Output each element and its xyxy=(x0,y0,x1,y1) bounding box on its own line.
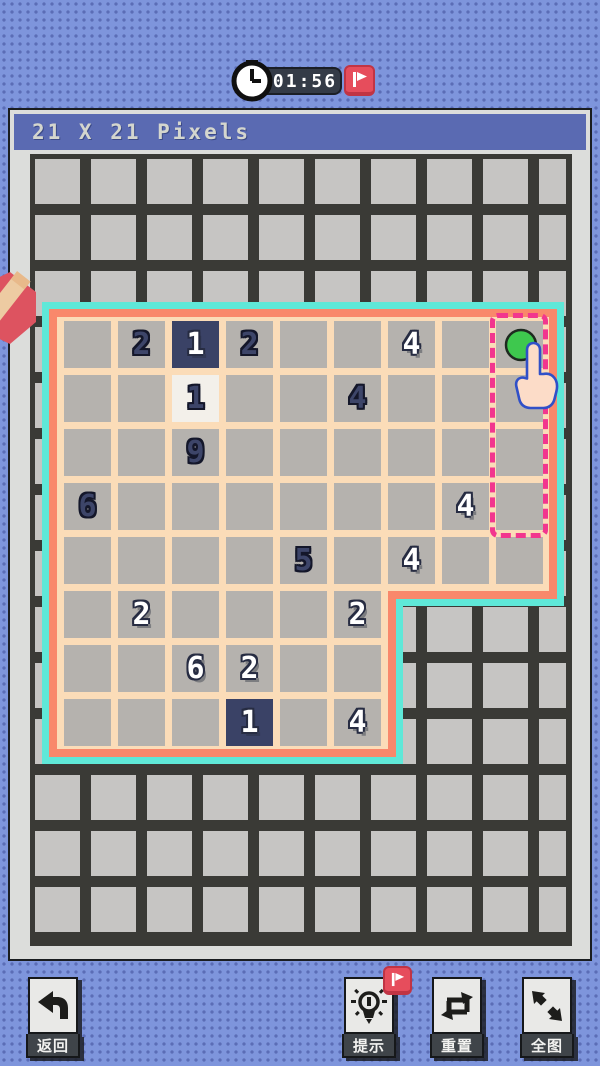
puzzle-cell[interactable] xyxy=(118,375,165,422)
puzzle-cell[interactable]: 5 xyxy=(280,537,327,584)
puzzle-cell[interactable] xyxy=(172,699,219,746)
puzzle-cell[interactable] xyxy=(280,429,327,476)
puzzle-cell[interactable]: 2 xyxy=(226,645,273,692)
puzzle-cell[interactable] xyxy=(64,591,111,638)
puzzle-cell[interactable] xyxy=(64,375,111,422)
puzzle-cell[interactable] xyxy=(334,645,381,692)
timer-value: 01:56 xyxy=(273,71,337,92)
puzzle-number: 6 xyxy=(186,654,204,684)
puzzle-number: 2 xyxy=(132,600,150,630)
puzzle-cell[interactable]: 6 xyxy=(172,645,219,692)
puzzle-cell[interactable] xyxy=(388,429,435,476)
puzzle-number: 1 xyxy=(186,384,204,414)
puzzle-cell[interactable] xyxy=(64,537,111,584)
full-view-button-label: 全图 xyxy=(520,1034,574,1058)
puzzle-number: 2 xyxy=(348,600,366,630)
hint-button[interactable]: 提示 xyxy=(342,977,396,1058)
puzzle-cell[interactable]: 6 xyxy=(64,483,111,530)
puzzle-cell[interactable]: 1 xyxy=(172,321,219,368)
puzzle-cell[interactable] xyxy=(388,375,435,422)
puzzle-number: 1 xyxy=(186,330,204,360)
puzzle-cell[interactable]: 9 xyxy=(172,429,219,476)
puzzle-number: 9 xyxy=(186,438,204,468)
puzzle-number: 5 xyxy=(294,546,312,576)
puzzle-cell[interactable]: 2 xyxy=(118,321,165,368)
reset-button-label: 重置 xyxy=(430,1034,484,1058)
puzzle-cell[interactable] xyxy=(226,375,273,422)
puzzle-cell[interactable]: 4 xyxy=(388,321,435,368)
puzzle-cell[interactable]: 2 xyxy=(226,321,273,368)
puzzle-cell[interactable] xyxy=(388,483,435,530)
back-button[interactable]: 返回 xyxy=(26,977,80,1058)
puzzle-cell[interactable] xyxy=(64,429,111,476)
puzzle-cell[interactable] xyxy=(442,375,489,422)
puzzle-cell[interactable] xyxy=(280,483,327,530)
puzzle-cell[interactable]: 1 xyxy=(226,699,273,746)
puzzle-cell[interactable] xyxy=(496,537,543,584)
puzzle-cell[interactable] xyxy=(280,645,327,692)
puzzle-cell[interactable] xyxy=(172,483,219,530)
puzzle-cell[interactable] xyxy=(334,483,381,530)
puzzle-cell[interactable] xyxy=(118,537,165,584)
puzzle-number: 4 xyxy=(456,492,474,522)
puzzle-region-border xyxy=(42,302,564,764)
flag-icon xyxy=(391,972,405,987)
puzzle-cell[interactable] xyxy=(118,429,165,476)
puzzle-cell[interactable] xyxy=(280,375,327,422)
timer-flag-button[interactable] xyxy=(344,65,375,96)
puzzle-cell[interactable] xyxy=(64,321,111,368)
puzzle-cell[interactable] xyxy=(334,429,381,476)
reset-button[interactable]: 重置 xyxy=(430,977,484,1058)
puzzle-cell[interactable]: 2 xyxy=(118,591,165,638)
pencil-badge-icon[interactable] xyxy=(0,266,44,350)
puzzle-cell[interactable] xyxy=(226,483,273,530)
puzzle-cell[interactable] xyxy=(226,429,273,476)
puzzle-cell[interactable]: 4 xyxy=(334,375,381,422)
puzzle-number: 2 xyxy=(132,330,150,360)
puzzle-cell[interactable] xyxy=(442,321,489,368)
hint-flag-badge[interactable] xyxy=(383,966,412,995)
puzzle-cell[interactable] xyxy=(442,537,489,584)
game-panel: 21 X 21 Pixels 212441496454226214 xyxy=(8,108,592,961)
puzzle-number: 2 xyxy=(240,654,258,684)
puzzle-cell[interactable] xyxy=(334,537,381,584)
puzzle-cell[interactable] xyxy=(64,645,111,692)
puzzle-cell[interactable] xyxy=(280,591,327,638)
puzzle-number: 4 xyxy=(348,708,366,738)
flag-icon xyxy=(352,71,368,88)
puzzle-cell[interactable] xyxy=(172,537,219,584)
back-arrow-icon xyxy=(35,988,71,1024)
puzzle-cell[interactable]: 1 xyxy=(172,375,219,422)
puzzle-cell[interactable] xyxy=(118,645,165,692)
back-button-label: 返回 xyxy=(26,1034,80,1058)
puzzle-cell[interactable] xyxy=(280,699,327,746)
puzzle-cell[interactable] xyxy=(118,699,165,746)
puzzle-number: 4 xyxy=(348,384,366,414)
reset-loop-icon xyxy=(439,988,475,1024)
puzzle-number: 6 xyxy=(78,492,96,522)
hand-cursor-icon xyxy=(500,328,566,412)
puzzle-cell[interactable] xyxy=(226,537,273,584)
puzzle-cell[interactable] xyxy=(280,321,327,368)
puzzle-cell[interactable] xyxy=(64,699,111,746)
puzzle-cell[interactable] xyxy=(442,429,489,476)
full-view-button[interactable]: 全图 xyxy=(520,977,574,1058)
puzzle-cell[interactable]: 4 xyxy=(442,483,489,530)
puzzle-cell[interactable] xyxy=(334,321,381,368)
puzzle-cell[interactable]: 2 xyxy=(334,591,381,638)
clock-icon xyxy=(230,59,274,103)
puzzle-cell[interactable] xyxy=(172,591,219,638)
puzzle-cell[interactable] xyxy=(226,591,273,638)
hint-button-label: 提示 xyxy=(342,1034,396,1058)
board-size-title: 21 X 21 Pixels xyxy=(32,120,251,144)
puzzle-cell[interactable] xyxy=(118,483,165,530)
puzzle-number: 4 xyxy=(402,546,420,576)
expand-arrows-icon xyxy=(529,988,565,1024)
puzzle-cell[interactable]: 4 xyxy=(334,699,381,746)
puzzle-number: 2 xyxy=(240,330,258,360)
puzzle-cell[interactable]: 4 xyxy=(388,537,435,584)
puzzle-number: 4 xyxy=(402,330,420,360)
board-size-header: 21 X 21 Pixels xyxy=(14,114,586,150)
puzzle-number: 1 xyxy=(240,708,258,738)
puzzle-region[interactable]: 212441496454226214 xyxy=(42,302,564,764)
